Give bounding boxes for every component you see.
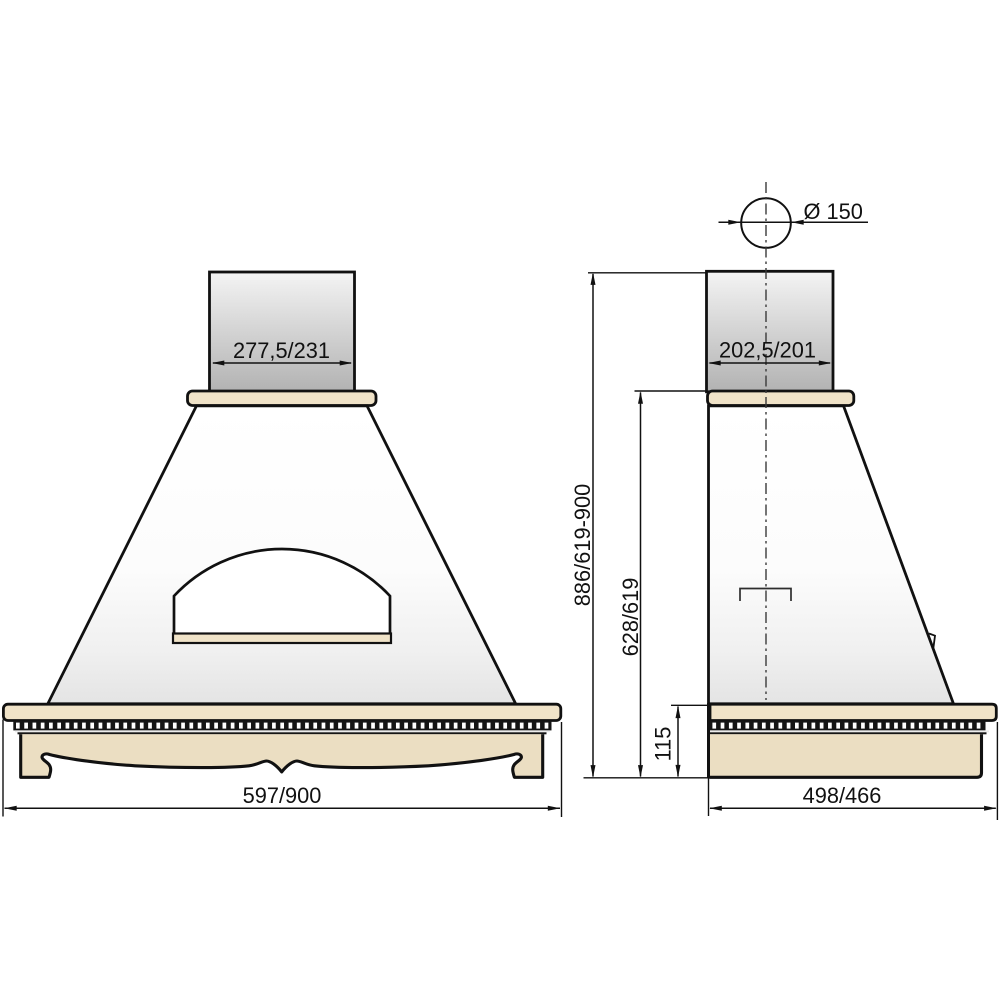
svg-text:597/900: 597/900	[243, 783, 322, 808]
svg-text:202,5/201: 202,5/201	[719, 338, 816, 363]
svg-text:886/619-900: 886/619-900	[570, 484, 595, 606]
svg-text:498/466: 498/466	[803, 783, 882, 808]
svg-text:115: 115	[650, 727, 675, 762]
svg-text:277,5/231: 277,5/231	[233, 338, 330, 363]
svg-text:Ø 150: Ø 150	[804, 199, 863, 224]
svg-text:628/619: 628/619	[618, 578, 643, 657]
